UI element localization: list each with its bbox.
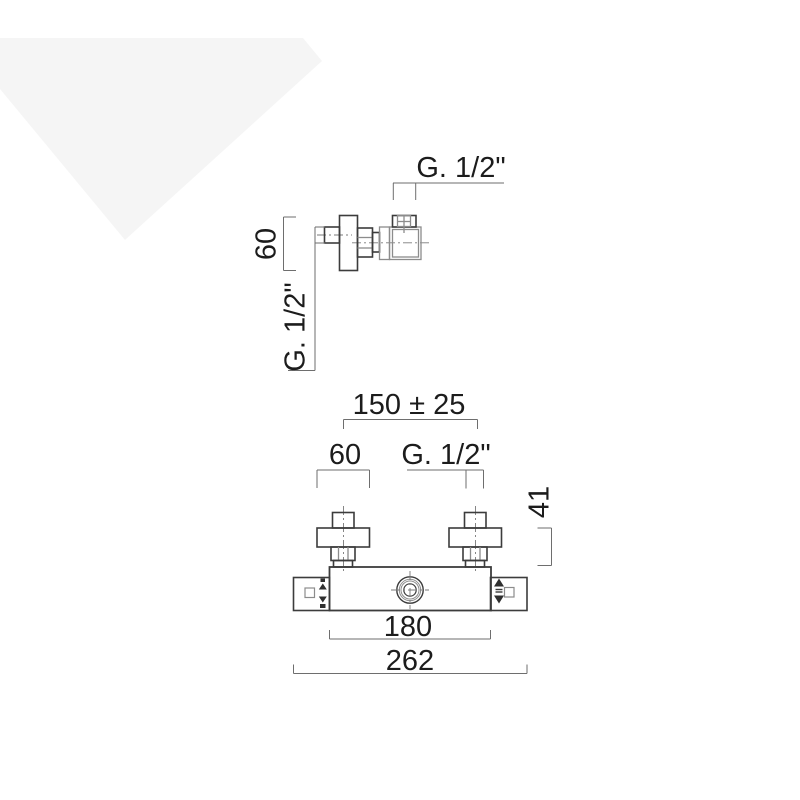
union-height-label: 41 [524, 486, 556, 518]
right-inlet-nut [463, 547, 487, 561]
dim-side-outlet-thread: G. 1/2" [393, 152, 506, 200]
temperature-handle-markings [305, 579, 327, 609]
dim-body-width: 180 [330, 611, 491, 643]
dim-center-distance: 150 ± 25 [344, 389, 478, 429]
flow-handle [491, 578, 528, 611]
flow-up-arrow-icon [494, 579, 504, 587]
dim-front-inlet-thread: G. 1/2" [401, 439, 490, 489]
center-distance-label: 150 ± 25 [353, 389, 466, 421]
side-outlet-thread-label: G. 1/2" [416, 152, 505, 184]
flow-handle-markings [494, 579, 514, 604]
technical-drawing-page: G. 1/2" 60 G. 1/2" [0, 0, 800, 800]
left-inlet-union [317, 506, 370, 573]
side-flange-height-label: 60 [251, 228, 283, 260]
dim-flange-width: 60 [317, 439, 370, 488]
right-inlet-union [449, 506, 502, 573]
union-connector [373, 233, 380, 253]
temp-up-arrow-icon [319, 584, 327, 590]
flow-down-arrow-icon [494, 596, 504, 604]
dim-total-width: 262 [294, 645, 528, 677]
temp-down-arrow-icon [319, 597, 327, 603]
dim-union-height: 41 [524, 486, 556, 566]
temp-hot-square-icon [321, 579, 326, 583]
right-inlet-connector [466, 561, 485, 568]
front-inlet-thread-label: G. 1/2" [401, 439, 490, 471]
total-width-label: 262 [386, 645, 434, 677]
watermark-diamond [0, 38, 322, 240]
flange-width-label: 60 [329, 439, 361, 471]
body-width-label: 180 [384, 611, 432, 643]
temp-cold-square-icon [320, 604, 326, 608]
flow-handle-button [505, 588, 515, 598]
front-view: 150 ± 25 60 G. 1/2" 41 180 [294, 389, 556, 677]
temp-handle-button [305, 588, 315, 598]
bottom-outlet-port [391, 571, 429, 609]
dim-side-flange-height: 60 [251, 217, 296, 271]
left-inlet-connector [334, 561, 353, 568]
side-inlet-thread-label: G. 1/2" [280, 282, 312, 371]
side-view: G. 1/2" 60 G. 1/2" [251, 152, 506, 372]
left-inlet-nut [331, 547, 355, 561]
dim-side-inlet-thread: G. 1/2" [280, 227, 325, 372]
mixer-dimension-drawing: G. 1/2" 60 G. 1/2" [0, 0, 800, 800]
